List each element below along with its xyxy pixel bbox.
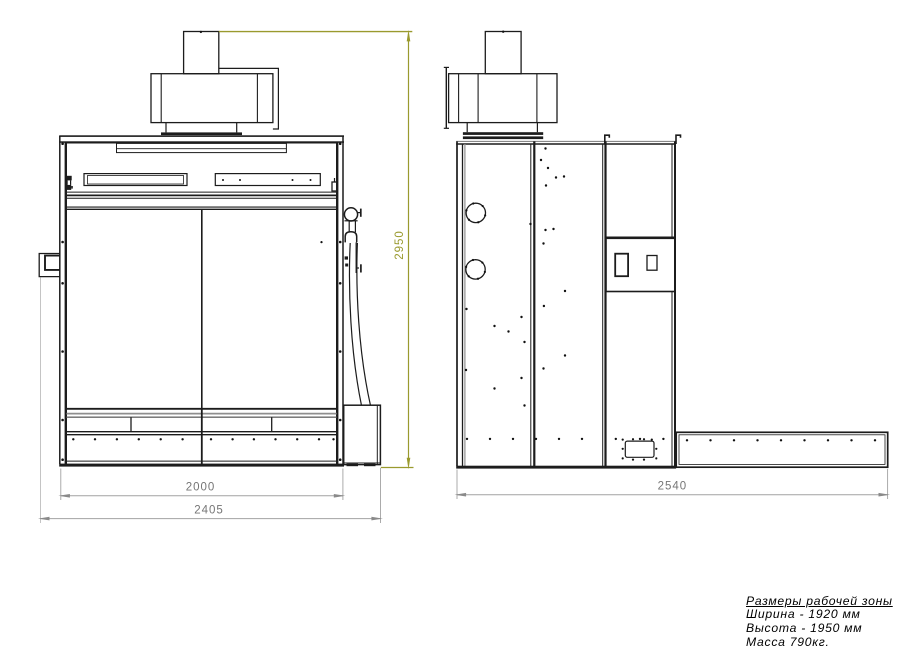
svg-text:2950: 2950	[394, 230, 406, 260]
svg-text:2540: 2540	[658, 480, 688, 492]
svg-text:2405: 2405	[194, 504, 224, 516]
svg-text:2000: 2000	[186, 482, 216, 494]
